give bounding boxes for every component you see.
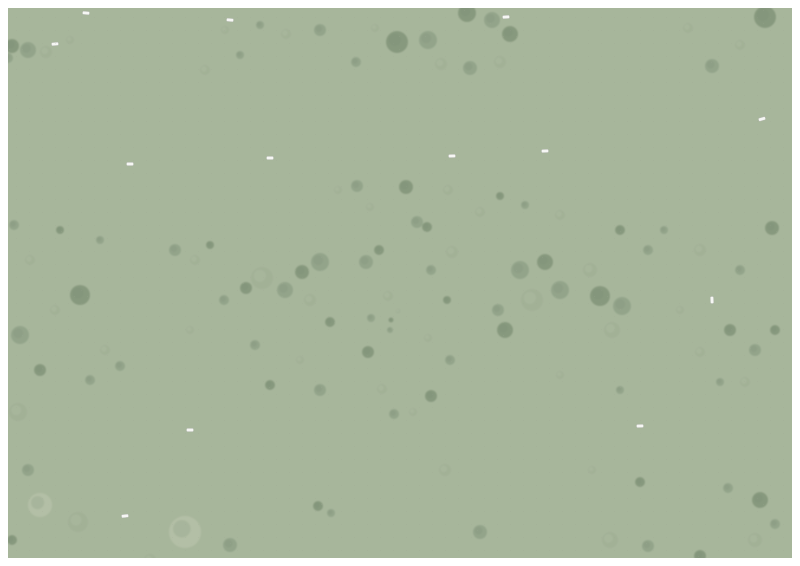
- tree-crown-highlight: [389, 318, 392, 321]
- tree-crown-highlight: [497, 193, 501, 197]
- tree-crown-highlight: [448, 248, 455, 255]
- tree-crown-highlight: [751, 346, 758, 353]
- tree-crown-highlight: [677, 307, 681, 311]
- tree-crown-highlight: [372, 25, 376, 29]
- tree-crown-highlight: [465, 63, 473, 71]
- car-marker: [187, 428, 194, 431]
- tree-crown-highlight: [494, 306, 501, 313]
- tree-crown-highlight: [326, 318, 332, 324]
- tree-crown-highlight: [242, 284, 249, 291]
- tree-crown-highlight: [220, 296, 226, 302]
- tree-crown-highlight: [585, 265, 593, 273]
- tree-crown-highlight: [367, 204, 371, 208]
- tree-crown-highlight: [361, 257, 369, 265]
- tree-crown-highlight: [401, 182, 409, 190]
- tree-crown-highlight: [425, 335, 429, 339]
- tree-crown-highlight: [173, 520, 191, 538]
- tree-crown-highlight: [335, 187, 339, 191]
- tree-crown-highlight: [696, 348, 702, 354]
- tree-crown-highlight: [604, 534, 613, 543]
- tree-crown-highlight: [427, 392, 434, 399]
- car-marker: [267, 156, 274, 159]
- tree-crown-highlight: [254, 270, 266, 282]
- tree-crown-highlight: [191, 256, 197, 262]
- tree-crown-highlight: [427, 266, 433, 272]
- tree-crown-highlight: [524, 292, 536, 304]
- tree-crown-highlight: [31, 496, 44, 509]
- car-marker: [82, 11, 89, 15]
- car-marker: [226, 18, 233, 22]
- tree-crown-highlight: [375, 246, 381, 252]
- tree-crown-highlight: [696, 552, 703, 559]
- tree-crown-highlight: [444, 297, 448, 301]
- tree-crown-highlight: [444, 186, 450, 192]
- tree-crown-highlight: [437, 60, 444, 67]
- tree-crown-highlight: [684, 24, 690, 30]
- tree-crown-highlight: [446, 356, 452, 362]
- tree-crown-highlight: [696, 246, 703, 253]
- tree-crown-highlight: [767, 223, 775, 231]
- car-marker: [541, 149, 548, 152]
- tree-crown-highlight: [556, 211, 562, 217]
- tree-crown-highlight: [636, 478, 642, 484]
- tree-crown-highlight: [187, 327, 191, 331]
- tree-crown-highlight: [736, 266, 742, 272]
- tree-crown-highlight: [101, 346, 107, 352]
- tree-crown-highlight: [771, 326, 777, 332]
- tree-crown-highlight: [388, 328, 391, 331]
- tree-crown-highlight: [504, 28, 513, 37]
- tree-crown-highlight: [661, 227, 665, 231]
- tree-crown-highlight: [328, 510, 332, 514]
- tree-crown-highlight: [499, 324, 508, 333]
- tree-crown-highlight: [364, 348, 371, 355]
- tree-crown-highlight: [771, 520, 777, 526]
- tree-crown-highlight: [316, 26, 323, 33]
- tree-crown-highlight: [10, 221, 16, 227]
- tree-crown-highlight: [8, 536, 14, 542]
- tree-crown-highlight: [384, 292, 390, 298]
- tree-crown-highlight: [644, 542, 651, 549]
- tree-crown-highlight: [97, 237, 101, 241]
- site-plan-page: [0, 0, 800, 566]
- tree-crown-highlight: [589, 467, 593, 471]
- tree-crown-highlight: [279, 284, 288, 293]
- tree-crown-highlight: [257, 22, 261, 26]
- tree-crown-highlight: [741, 378, 747, 384]
- tree-crown-highlight: [316, 386, 323, 393]
- car-marker: [502, 15, 509, 19]
- car-marker: [710, 296, 713, 303]
- tree-crown-highlight: [368, 315, 372, 319]
- tree-crown-highlight: [553, 283, 563, 293]
- tree-crown-highlight: [11, 405, 21, 415]
- tree-crown-highlight: [557, 372, 561, 376]
- tree-crown-highlight: [539, 256, 548, 265]
- tree-crown-highlight: [736, 41, 742, 47]
- tree-crown-highlight: [24, 466, 31, 473]
- tree-crown-highlight: [36, 366, 43, 373]
- tree-crown-highlight: [476, 208, 482, 214]
- drawing-layer: [0, 0, 800, 566]
- tree-crown-highlight: [67, 37, 71, 41]
- tree-crown-highlight: [207, 242, 211, 246]
- tree-crown-highlight: [51, 306, 57, 312]
- tree-crown-highlight: [750, 535, 758, 543]
- tree-crown-highlight: [222, 27, 226, 31]
- tree-crown-highlight: [606, 324, 615, 333]
- tree-crown-highlight: [314, 502, 320, 508]
- tree-crown-highlight: [475, 527, 483, 535]
- tree-crown-highlight: [410, 409, 414, 413]
- tree-crown-highlight: [378, 385, 384, 391]
- tree-crown-highlight: [26, 256, 32, 262]
- tree-crown-highlight: [644, 246, 650, 252]
- tree-crown-highlight: [237, 52, 241, 56]
- tree-crown-highlight: [86, 376, 92, 382]
- tree-crown-highlight: [421, 33, 431, 43]
- tree-crown-highlight: [13, 328, 23, 338]
- tree-crown-highlight: [522, 202, 526, 206]
- tree-crown-highlight: [57, 227, 61, 231]
- tree-crown-highlight: [116, 362, 122, 368]
- tree-crown-highlight: [486, 14, 495, 23]
- tree-crown-highlight: [251, 341, 257, 347]
- trees-layer: [0, 0, 800, 566]
- tree-crown-highlight: [22, 44, 31, 53]
- tree-crown-highlight: [42, 48, 49, 55]
- car-marker: [448, 154, 455, 157]
- tree-crown-highlight: [353, 182, 360, 189]
- tree-crown-highlight: [306, 296, 313, 303]
- car-marker: [636, 424, 643, 427]
- tree-crown-highlight: [73, 288, 84, 299]
- tree-crown-highlight: [754, 494, 763, 503]
- tree-crown-highlight: [496, 58, 503, 65]
- tree-crown-highlight: [441, 466, 448, 473]
- tree-crown-highlight: [396, 309, 399, 312]
- tree-crown-highlight: [757, 9, 769, 21]
- tree-crown-highlight: [282, 30, 288, 36]
- tree-crown-highlight: [297, 267, 305, 275]
- tree-crown-highlight: [390, 410, 396, 416]
- tree-crown-highlight: [423, 223, 429, 229]
- tree-crown-highlight: [225, 540, 233, 548]
- tree-crown-highlight: [171, 246, 178, 253]
- tree-crown-highlight: [0, 0, 800, 566]
- tree-crown-highlight: [724, 484, 730, 490]
- tree-crown-highlight: [513, 263, 523, 273]
- tree-crown-highlight: [616, 226, 622, 232]
- tree-crown-highlight: [726, 326, 733, 333]
- tree-crown-highlight: [352, 58, 358, 64]
- tree-crown-highlight: [617, 387, 621, 391]
- tree-crown-highlight: [297, 357, 301, 361]
- tree-crown-highlight: [201, 66, 207, 72]
- site-plan-map: [0, 0, 800, 566]
- tree-crown-highlight: [717, 379, 721, 383]
- tree-crown-highlight: [615, 299, 625, 309]
- tree-crown-highlight: [313, 255, 323, 265]
- car-marker: [51, 42, 58, 46]
- car-marker: [121, 514, 128, 518]
- tree-crown-highlight: [389, 34, 401, 46]
- tree-crown-highlight: [593, 289, 604, 300]
- tree-crown-highlight: [707, 61, 715, 69]
- tree-crown-highlight: [71, 515, 82, 526]
- car-marker: [127, 162, 134, 165]
- tree-crown-highlight: [266, 381, 272, 387]
- tree-crown-highlight: [413, 218, 420, 225]
